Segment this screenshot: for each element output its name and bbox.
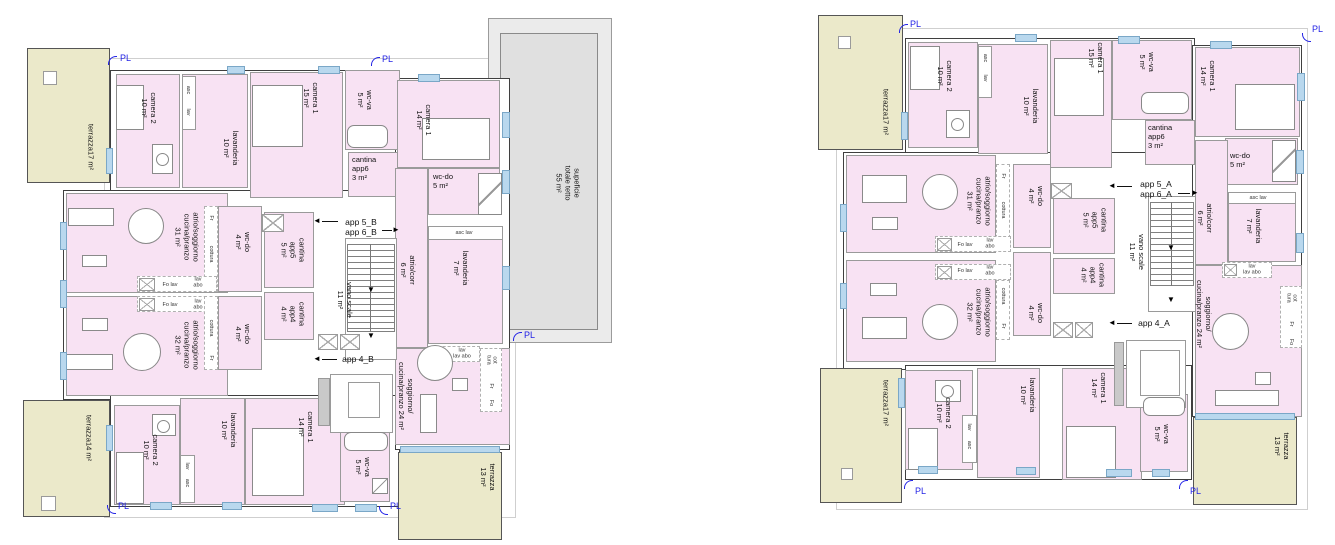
elevator-a-inner (1140, 350, 1180, 396)
label-b-lavanderia7: lavanderia 7 m² (451, 251, 469, 286)
label-a-camera1-14-top: camera 1 14 m² (1198, 60, 1216, 91)
desk-chair-a-camera2-top (951, 118, 964, 131)
kitchen-a-atrio31-sink (937, 238, 952, 251)
room-a-wcdo4-bot (1013, 252, 1051, 336)
elevator-b-inner (348, 382, 380, 418)
window-b-1 (227, 66, 245, 74)
window-b-15 (502, 266, 510, 290)
desk-chair-b-camera2-top (156, 153, 169, 166)
label-b-lavanderia-top: lavanderia 10 m² (221, 131, 239, 166)
side-table-b-atrio31 (82, 255, 107, 267)
label-b-vano-scale: vano scale 11 m² (335, 282, 353, 318)
shaft-a-x1 (1051, 183, 1072, 199)
pl-a-3: PL (915, 486, 926, 496)
leader-b-app56-left (322, 221, 338, 222)
shaft-a-asc-bot (962, 415, 977, 463)
arrow-b-app4-left: ◄ (313, 355, 321, 363)
label-b-terrace-tl: terrazza17 m² (86, 124, 95, 170)
label-b-cantina-app4: cantina app4 4 m² (279, 302, 306, 326)
window-b-6 (60, 280, 67, 308)
label-a-cantina-app4: cantina app4 4 m² (1079, 263, 1106, 287)
stairs-b-arrow-down-1: ▼ (367, 286, 375, 294)
window-a-4 (901, 112, 908, 140)
bed-a-camera2-bot (908, 428, 938, 470)
table-b-sogg24 (417, 345, 453, 381)
label-b-roof: supeficie totale tetto 55 m² (554, 165, 581, 200)
window-a-11 (1152, 469, 1170, 477)
kitchen-b-atrio31-sink (139, 278, 155, 291)
label-a-camera2-bot: camera 2 10 m² (934, 397, 952, 428)
label-b-camera2-top: camera 2 10 m² (139, 92, 157, 123)
shower-b-wcdo5 (478, 173, 502, 215)
shower-a-wcdo5 (1272, 140, 1296, 182)
tiny-b-fo-24: Fo (488, 400, 494, 406)
tiny-b-fr-32: Fr (208, 355, 214, 360)
label-a-lavanderia-top: lavanderia 10 m² (1021, 89, 1039, 124)
label-a-wcdo4-top: wc-do 4 m² (1026, 186, 1044, 206)
label-a-terrace-tl: terrazza17 m² (881, 89, 890, 135)
leader-b-app4 (322, 359, 337, 360)
label-b-camera1-14-bot: camera 1 14 m² (296, 411, 314, 442)
tiny-a-folav-31: Fo lav (958, 242, 973, 248)
table-a-atrio32 (922, 304, 958, 340)
tiny-a-lav-bot: lav (966, 423, 972, 430)
label-b-wcva-top: wc-va 5 m² (355, 90, 373, 110)
kitchen-b-atrio32-sink (139, 298, 155, 311)
sofa-b-atrio31 (68, 208, 114, 226)
label-b-cantina-app6: cantina app6 3 m² (352, 156, 376, 183)
sofa-a-atrio32 (862, 317, 907, 339)
window-a-12 (1297, 73, 1305, 101)
label-b-cantina-app5: cantina app5 5 m² (279, 238, 306, 262)
label-a-camera1-15: camera 1 15 m² (1086, 42, 1104, 73)
label-b-camera1-14-top: camera 1 14 m² (414, 104, 432, 135)
plan-a-terrace-bl-pillar (841, 468, 853, 480)
cabinet-b-sogg24 (420, 394, 437, 433)
label-a-wcdo4-bot: wc-do 4 m² (1026, 303, 1044, 323)
plan-b-roof-inner (500, 33, 598, 330)
side-table-b-atrio32 (82, 318, 108, 331)
tiny-a-lavabo-24: lav lav abo (1243, 264, 1261, 277)
pl-hook-b-1 (108, 56, 117, 65)
pl-hook-a-3 (904, 480, 913, 489)
tiny-b-lavabo-32: lav abo (193, 299, 202, 312)
shaft-b-x2 (318, 334, 338, 350)
side-b-sogg24 (452, 378, 468, 391)
window-a-3 (1210, 41, 1232, 49)
leader-a-app56-left (1117, 186, 1132, 187)
tiny-b-lav-top: lav (185, 108, 191, 115)
bed-a-camera1-14-top (1235, 84, 1295, 130)
table-a-sogg24 (1212, 313, 1249, 350)
shaft-b-x3 (340, 334, 360, 350)
desk-chair-a-camera2-bot (941, 385, 954, 398)
label-a-vano-scale: vano scale 11 m² (1127, 234, 1145, 270)
plan-b-terrace-tl-pillar (43, 71, 57, 85)
pl-b-5: PL (390, 501, 401, 511)
label-a-lavanderia7: lavanderia 7 m² (1244, 209, 1262, 244)
floor-plan-canvas: ▼ ▼ terrazza17 m² t (0, 0, 1335, 545)
tiny-a-fr-24: Fr (1288, 321, 1294, 326)
arrow-a-app4-left: ◄ (1108, 319, 1116, 327)
tiny-b-lavabo-31: lav abo (193, 277, 202, 290)
sofa-a-atrio31 (862, 175, 907, 203)
tiny-b-lavabo-24: lav lav abo (453, 348, 471, 361)
label-b-wcva-bot: wc-va 5 m² (353, 457, 371, 477)
window-a-13 (1296, 150, 1304, 174)
shaft-b-asc-top (182, 76, 196, 130)
shaft-b-x1 (262, 214, 284, 232)
window-b-2 (318, 66, 340, 74)
tiny-b-fr-24: Fr (488, 383, 494, 388)
tiny-b-asc-bot: asc (184, 479, 190, 488)
label-a-terrace-br: terrazza 13 m² (1272, 432, 1290, 459)
tiny-b-asclav-7: asc lav (455, 230, 472, 236)
window-a-6 (840, 283, 847, 309)
tiny-a-cottura-31: cottura (1000, 202, 1006, 219)
bed-b-camera1-15 (252, 85, 303, 147)
kitchen-a-atrio32-sink (937, 266, 952, 279)
shaft-a-x3 (1075, 322, 1093, 338)
leader-a-app56-right (1178, 193, 1190, 194)
tiny-b-folav-31: Fo lav (163, 282, 178, 288)
tiny-b-cottura-32: cottura (208, 320, 214, 337)
plan-a-terrace-bottom-right (1193, 417, 1297, 505)
tiny-a-lavabo-32: lav abo (985, 265, 994, 278)
label-b-wcdo5: wc-do 5 m² (433, 173, 453, 191)
label-a-camera1-14-bot: camera 1 14 m² (1089, 372, 1107, 403)
arrow-b-app56-left: ◄ (313, 217, 321, 225)
label-a-atrio32: atrio/soggiorno cucina/pranzo 32 m² (965, 287, 992, 337)
elevator-b-pad (318, 378, 330, 426)
table-b-atrio31 (128, 208, 164, 244)
window-a-2 (1118, 36, 1140, 44)
tiny-a-fr-32: Fr (1000, 323, 1006, 328)
table-b-atrio32 (123, 333, 161, 371)
plan-a-terrace-tl-pillar (838, 36, 851, 49)
elevator-a-pad (1114, 342, 1124, 406)
tiny-b-lav-bot: lav (184, 462, 190, 469)
window-b-3 (418, 74, 440, 82)
window-b-14 (502, 170, 510, 194)
desk-chair-b-camera2-bot (157, 420, 170, 433)
window-a-15-door (1195, 413, 1295, 420)
label-a-wcdo5: wc-do 5 m² (1230, 152, 1250, 170)
pl-b-4: PL (118, 501, 129, 511)
arrow-a-app56-left: ◄ (1108, 182, 1116, 190)
label-a-wcva-bot: wc-va 5 m² (1152, 424, 1170, 444)
leader-b-app56-right (382, 230, 392, 231)
label-a-terrace-bl: terrazza17 m² (881, 380, 890, 426)
label-a-cantina-app5: cantina app5 5 m² (1081, 208, 1108, 232)
pl-b-2: PL (382, 54, 393, 64)
stairs-a-arrow-down-1: ▼ (1167, 244, 1175, 252)
tub-b-wcva-bot (344, 432, 388, 451)
label-a-lavanderia-bot: lavanderia 10 m² (1018, 378, 1036, 413)
window-b-10 (222, 502, 242, 510)
tiny-a-asc-bot: asc (966, 441, 972, 450)
pl-hook-a-1 (899, 24, 908, 33)
window-b-7 (60, 352, 67, 380)
label-b-atrio31: atrio/soggiorno cucina/pranzo 31 m² (173, 212, 200, 262)
window-b-9 (150, 502, 172, 510)
label-a-app56: app 5_A app 6_A (1140, 179, 1172, 199)
label-a-wcva-top: wc-va 5 m² (1137, 52, 1155, 72)
plan-b-terrace-top-left (27, 48, 110, 183)
label-a-atrio31: atrio/soggiorno cucina/pranzo 31 m² (965, 176, 992, 226)
label-b-sogg24: soggiorno/ cucina/pranzo 24 m² (396, 362, 414, 430)
label-b-app56: app 5_B app 6_B (345, 217, 377, 237)
side-table-a-atrio32 (870, 283, 897, 296)
window-a-10 (1106, 469, 1132, 477)
label-b-wcdo4-bot: wc-do 4 m² (233, 324, 251, 344)
window-b-13 (502, 112, 510, 138)
tiny-b-folav-32: Fo lav (163, 302, 178, 308)
shower-b-wcva-bot (372, 478, 388, 494)
tiny-b-cottura-24: cot tura (485, 355, 498, 364)
tiny-a-cottura-32: cottura (1000, 288, 1006, 305)
side-a-sogg24 (1255, 372, 1271, 385)
arrow-b-app56-right: ► (392, 226, 400, 234)
side-table-a-atrio31 (872, 217, 898, 230)
tub-a-wcva-bot (1143, 397, 1185, 416)
window-b-12 (355, 504, 377, 512)
pl-hook-b-3 (513, 332, 522, 341)
window-a-1 (1015, 34, 1037, 42)
tiny-a-folav-32: Fo lav (958, 268, 973, 274)
couch-a-sogg24 (1215, 390, 1279, 406)
label-b-camera1-15: camera 1 15 m² (301, 82, 319, 113)
label-b-wcdo4-top: wc-do 4 m² (233, 232, 251, 252)
plan-b-terrace-bottom-left (23, 400, 110, 517)
label-a-sogg24: soggiorno/ cucina/pranzo 24 m² (1194, 280, 1212, 348)
shaft-a-x2 (1053, 322, 1073, 338)
tiny-a-lav-top: lav (982, 74, 988, 81)
leader-a-app4 (1117, 323, 1132, 324)
window-b-4 (106, 148, 113, 174)
kitchen-a-sogg24-x (1224, 264, 1237, 276)
label-b-atrio-corr: atrio/corr 6 m² (398, 255, 416, 285)
pl-b-1: PL (120, 53, 131, 63)
window-a-7 (898, 378, 905, 408)
label-a-cantina-app6: cantina app6 3 m² (1148, 124, 1172, 151)
tiny-a-asc-top: asc (982, 54, 988, 63)
window-a-9 (1016, 467, 1036, 475)
tiny-a-cottura-24: cot tura (1285, 293, 1298, 302)
window-a-5 (840, 204, 847, 232)
stairs-b-arrow-down-2: ▼ (367, 332, 375, 340)
label-a-atrio-corr: atrio/corr 6 m² (1195, 203, 1213, 233)
tub-b-wcva-top (347, 125, 388, 148)
sofa-b-atrio32 (66, 354, 113, 370)
tiny-a-fo-24: Fo (1288, 339, 1294, 345)
label-b-atrio32: atrio/soggiorno cucina/pranzo 32 m² (173, 320, 200, 370)
label-b-app4: app 4_B (342, 354, 374, 364)
window-b-8 (106, 425, 113, 451)
label-a-app4: app 4_A (1138, 318, 1170, 328)
bed-b-camera2-bot (116, 452, 144, 504)
window-b-5 (60, 222, 67, 250)
label-a-camera2-top: camera 2 10 m² (935, 60, 953, 91)
label-b-camera2-bot: camera 2 10 m² (141, 434, 159, 465)
pl-a-1: PL (910, 19, 921, 29)
tiny-a-lavabo-31: lav abo (985, 238, 994, 251)
window-b-16-door (400, 446, 500, 453)
table-a-atrio31 (922, 174, 958, 210)
pl-hook-b-2 (371, 57, 380, 66)
window-a-14 (1296, 233, 1304, 253)
stairs-a-arrow-down-2: ▼ (1167, 296, 1175, 304)
label-b-lavanderia-bot: lavanderia 10 m² (219, 413, 237, 448)
tub-a-wcva-top (1141, 92, 1189, 114)
tiny-a-fr-31: Fr (1000, 173, 1006, 178)
tiny-b-asc-top: asc (185, 86, 191, 95)
pl-b-3: PL (524, 330, 535, 340)
window-a-8 (918, 466, 938, 474)
label-b-terrace-br: terrazza 13 m² (478, 463, 496, 490)
pl-a-4: PL (1190, 486, 1201, 496)
pl-a-2: PL (1312, 24, 1323, 34)
tiny-b-fr-31: Fr (208, 215, 214, 220)
tiny-b-cottura-31: cottura (208, 246, 214, 263)
pl-hook-a-4 (1179, 480, 1188, 489)
tiny-a-asclav-7: asc lav (1249, 195, 1266, 201)
label-b-terrace-bl: terrazza14 m² (84, 415, 93, 461)
plan-b-terrace-bl-pillar (41, 496, 56, 511)
arrow-a-app56-right: ► (1191, 189, 1199, 197)
window-b-11 (312, 504, 338, 512)
